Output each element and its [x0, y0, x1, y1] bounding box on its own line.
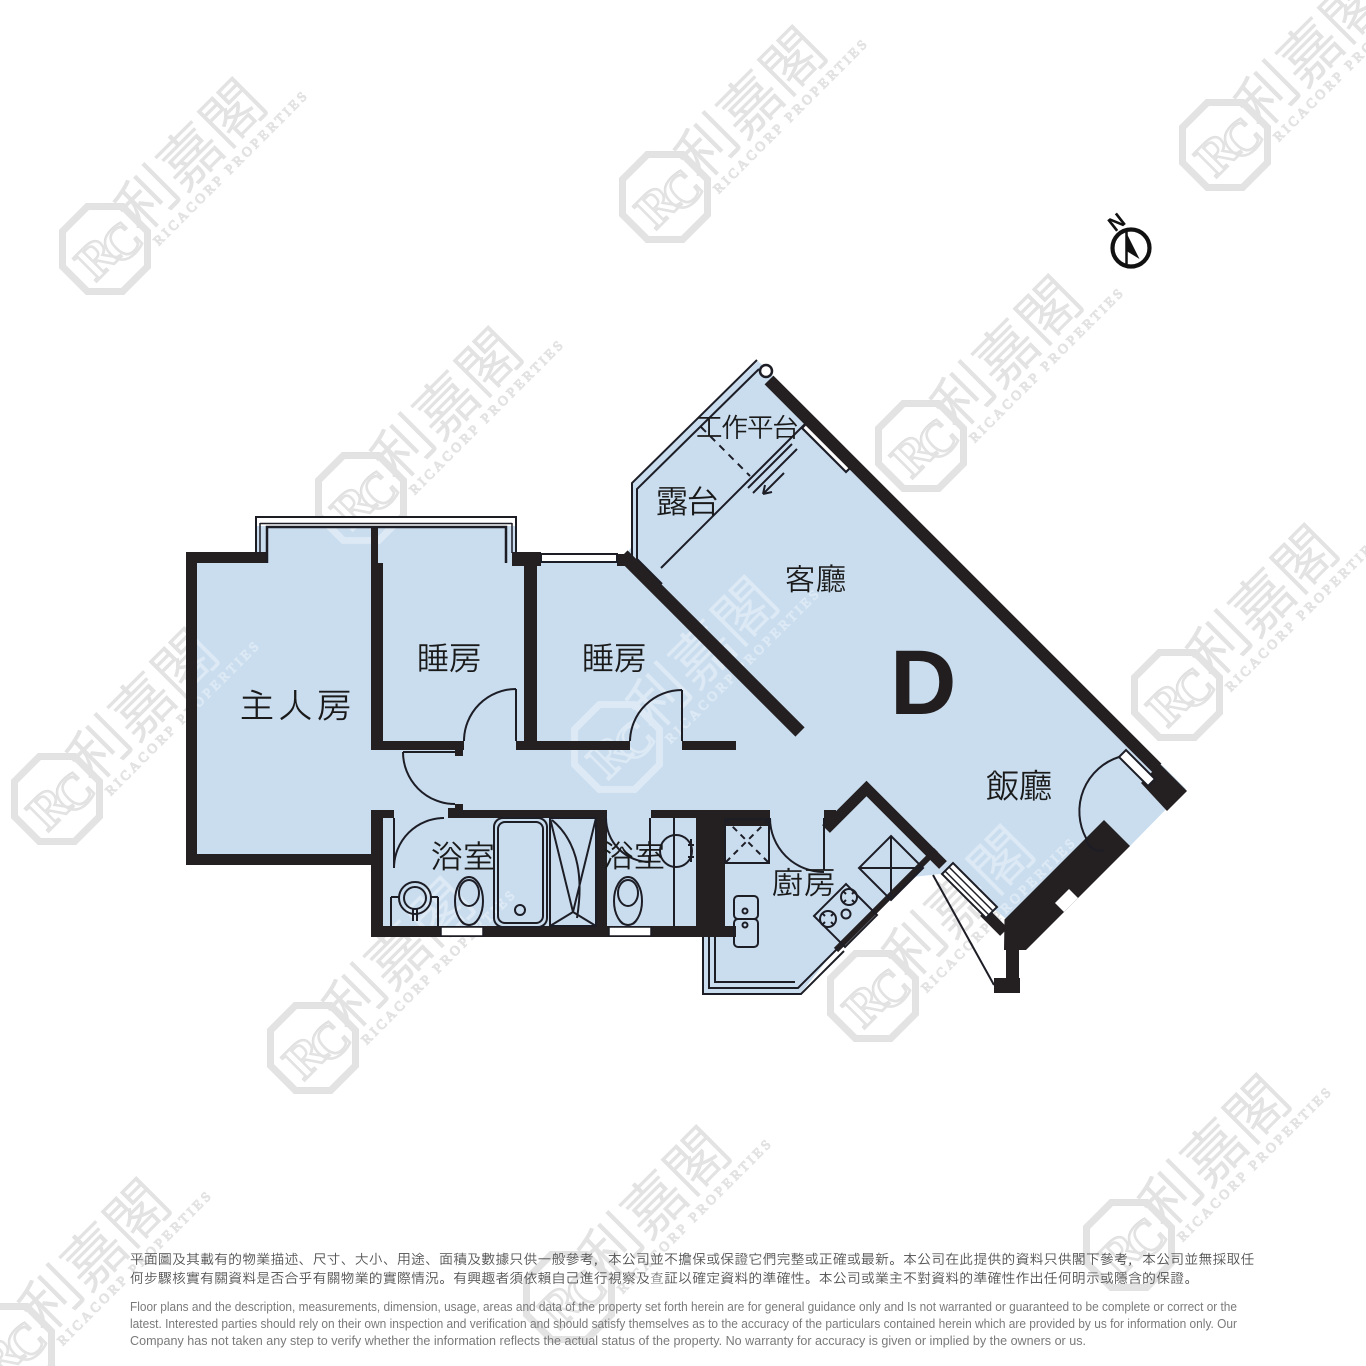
- svg-text:D: D: [890, 632, 956, 734]
- svg-text:Company has not taken any step: Company has not taken any step to verify…: [130, 1334, 1086, 1348]
- svg-text:latest. Interested parties sho: latest. Interested parties should rely o…: [130, 1317, 1237, 1331]
- svg-text:Floor plans and the descriptio: Floor plans and the description, measure…: [130, 1300, 1237, 1314]
